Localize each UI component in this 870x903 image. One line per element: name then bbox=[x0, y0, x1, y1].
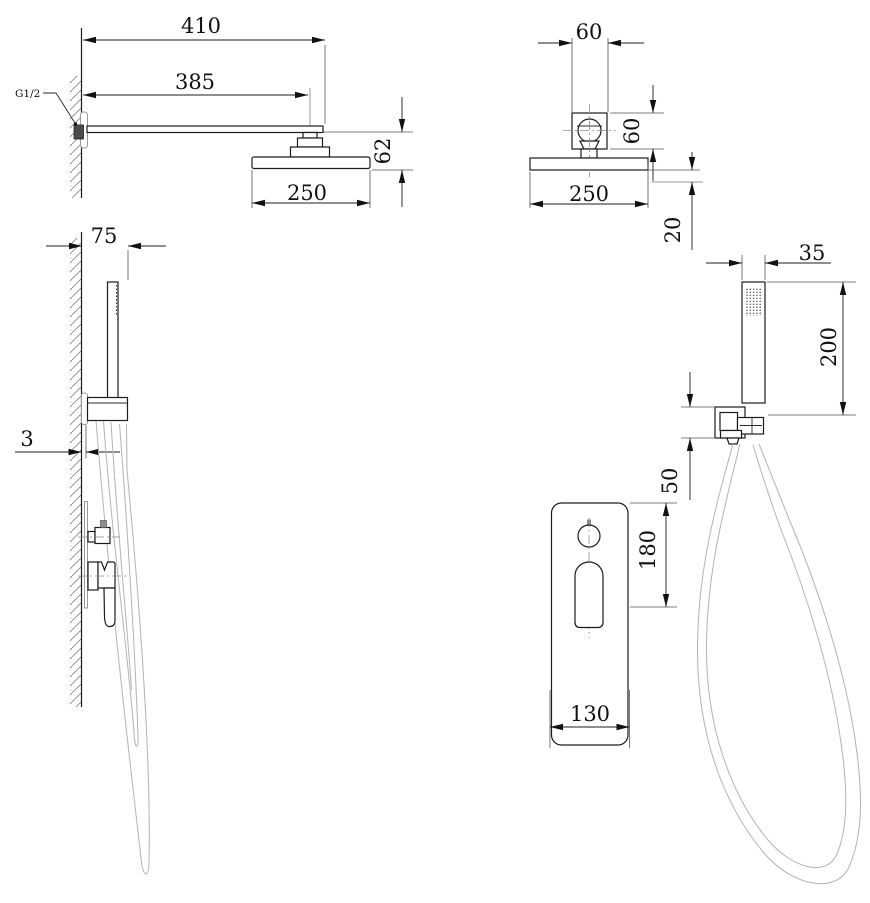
thread-nipple bbox=[74, 125, 84, 139]
thread-leader-dot bbox=[74, 122, 77, 125]
dim-385-label: 385 bbox=[175, 70, 215, 94]
thread-size-label: G1/2 bbox=[15, 88, 40, 100]
shower-arm bbox=[87, 126, 323, 133]
spray-face-dots bbox=[746, 288, 763, 317]
hose-connector bbox=[727, 438, 739, 444]
mixer-front-view: 180 130 bbox=[550, 503, 677, 748]
dim-410-label: 410 bbox=[181, 14, 221, 38]
rain-shower-front-view: 60 60 250 20 bbox=[530, 20, 703, 250]
wall-hatch-2 bbox=[70, 238, 81, 707]
hose-loop-left-outer bbox=[96, 421, 149, 874]
technical-drawing-page: 410 385 G1/2 250 62 bbox=[0, 0, 870, 903]
holder-escutcheon-side bbox=[82, 393, 88, 425]
shower-set-drawing: 410 385 G1/2 250 62 bbox=[0, 0, 870, 903]
hose-loop-right-inner bbox=[706, 444, 845, 868]
rain-head-side bbox=[252, 157, 370, 169]
hose-loop-right-outer bbox=[697, 444, 860, 884]
dim-60h-label: 60 bbox=[620, 118, 644, 145]
holder-elbow-front bbox=[720, 413, 738, 431]
holder-lower-block bbox=[721, 431, 742, 439]
lever-front bbox=[575, 562, 603, 628]
lever-handle-side bbox=[104, 588, 115, 627]
arm-connector-collar bbox=[303, 133, 317, 139]
rain-shower-side-view: 410 385 G1/2 250 62 bbox=[15, 14, 413, 208]
diverter-button-side bbox=[101, 521, 107, 528]
arm-connector-base bbox=[291, 147, 330, 157]
dim-130-label: 130 bbox=[570, 702, 610, 726]
dim-35-label: 35 bbox=[799, 241, 826, 265]
dim-200-label: 200 bbox=[817, 327, 841, 367]
head-stem bbox=[581, 149, 597, 158]
dim-20-label: 20 bbox=[661, 217, 685, 244]
dim-60w-label: 60 bbox=[576, 20, 603, 44]
hand-shower-front-view: 35 200 50 bbox=[658, 241, 861, 884]
rain-head-front bbox=[530, 158, 648, 170]
dim-62-label: 62 bbox=[371, 138, 395, 165]
dim-50-label: 50 bbox=[658, 468, 682, 495]
hand-shower-side-view: 75 3 bbox=[15, 224, 166, 874]
dim-75-label: 75 bbox=[91, 224, 118, 248]
dim-3-label: 3 bbox=[20, 427, 33, 451]
holder-body-side bbox=[88, 398, 128, 421]
dim-250s-label: 250 bbox=[287, 181, 327, 205]
arm-connector-nut bbox=[298, 138, 323, 147]
diverter-knob-side bbox=[95, 528, 110, 544]
dim-180-label: 180 bbox=[636, 530, 660, 570]
dim-250f-label: 250 bbox=[569, 182, 609, 206]
mixer-plate-side bbox=[85, 502, 88, 609]
lever-body-side bbox=[98, 562, 115, 588]
